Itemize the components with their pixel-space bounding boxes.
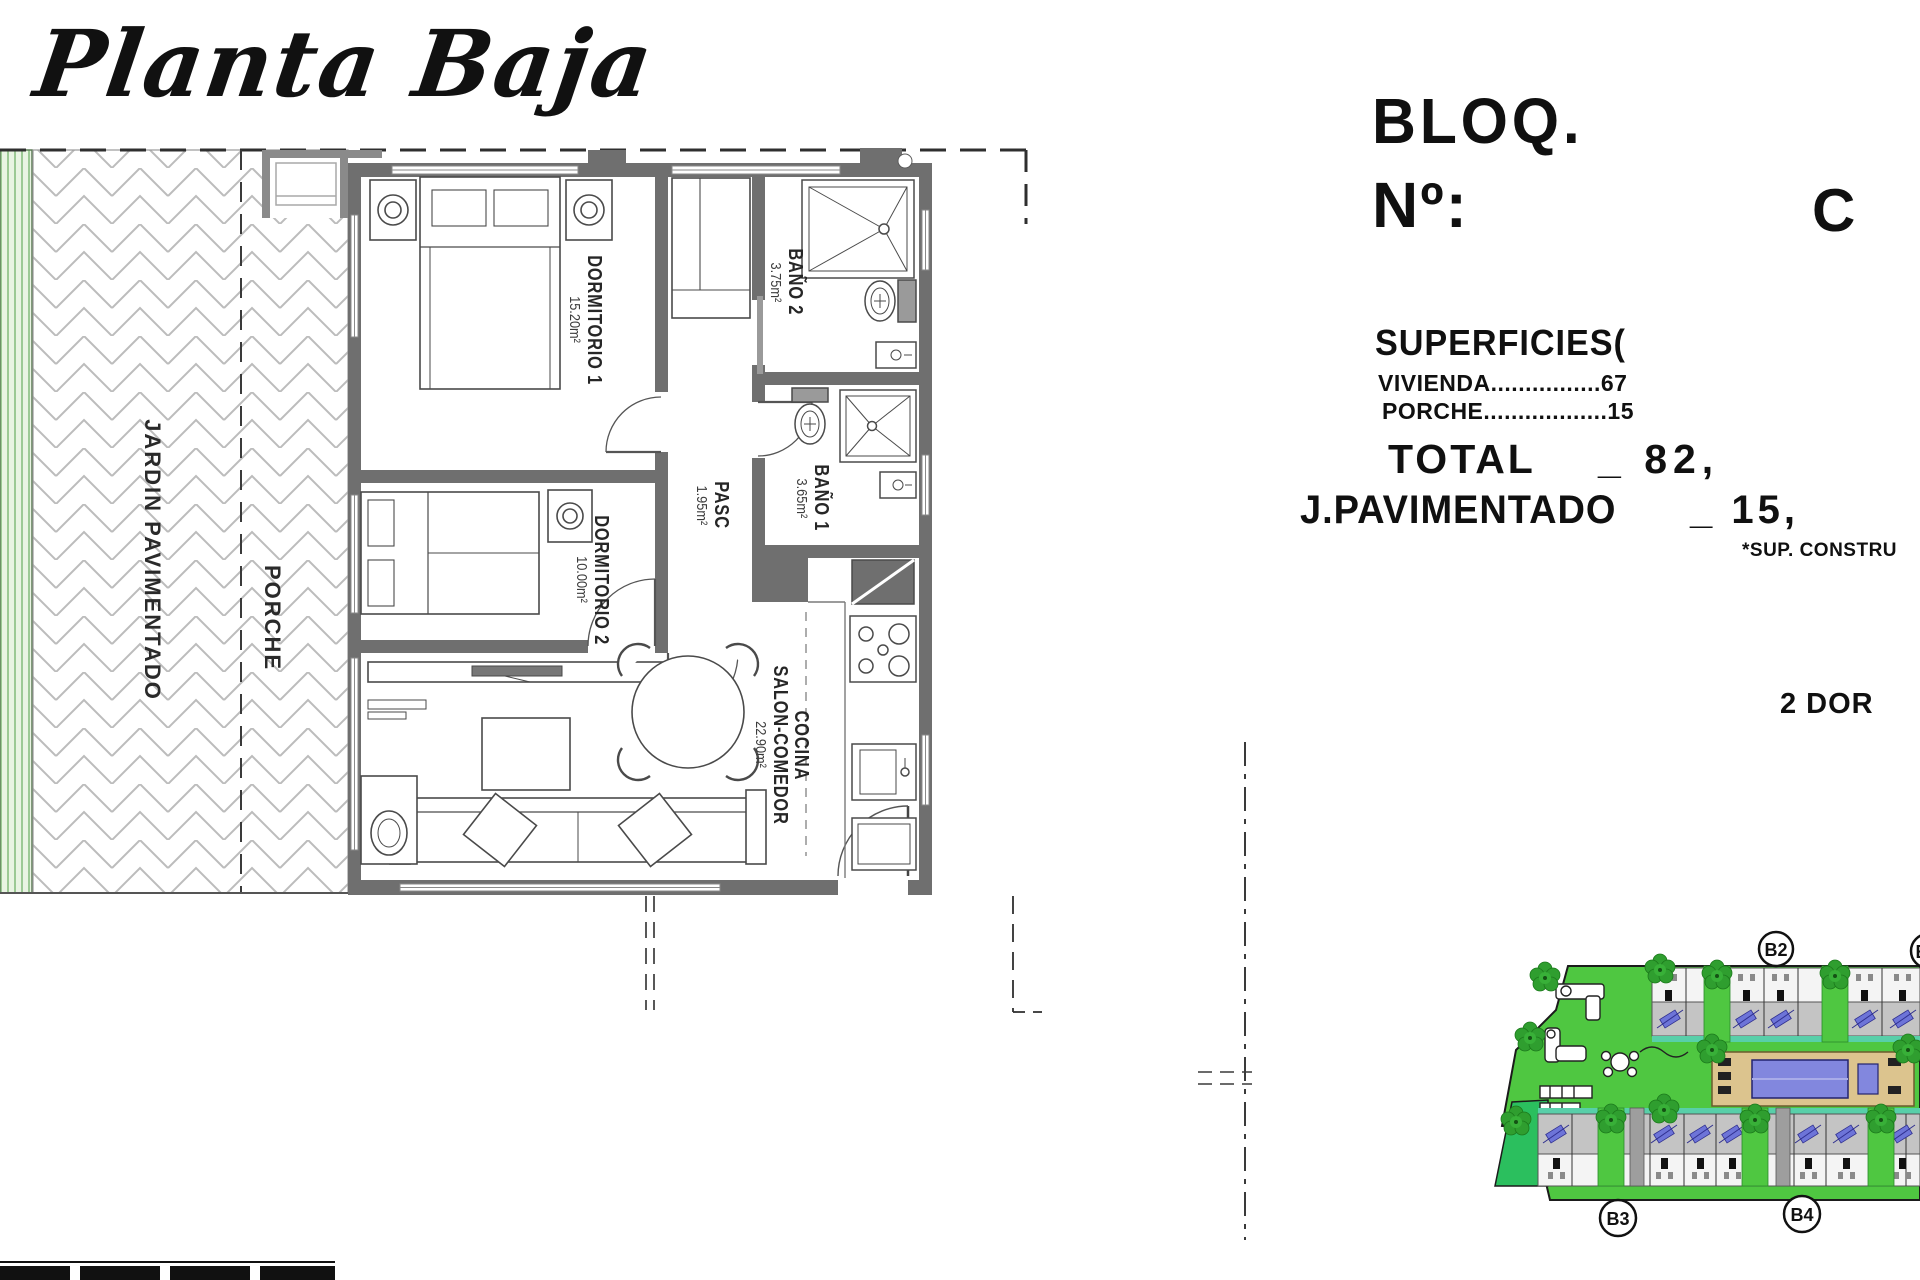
porch-niche	[262, 150, 382, 218]
number-value: C	[1812, 176, 1855, 245]
room-name: BAÑO 2	[784, 249, 805, 316]
jpavimentado-label: J.PAVIMENTADO	[1300, 488, 1616, 533]
room-name: PASC	[710, 481, 731, 529]
bedroom2-furniture	[361, 490, 592, 614]
toilet	[865, 280, 916, 322]
unit-type-label: 2 DOR	[1780, 688, 1874, 721]
page-title: Planta Baja	[28, 10, 660, 118]
total-value: _ 82,	[1598, 436, 1719, 483]
room-area: 3.75m²	[767, 262, 784, 302]
porche-line: PORCHE..................15	[1382, 398, 1634, 425]
room-name-line1: COCINA	[791, 710, 812, 780]
room-area: 1.95m²	[693, 485, 710, 525]
room-area: 10.00m²	[573, 557, 590, 604]
jardin-pavimentado-label: JARDIN PAVIMENTADO	[139, 410, 165, 710]
dishwasher	[852, 818, 916, 870]
room-name: BAÑO 1	[810, 465, 831, 532]
stove	[850, 616, 916, 682]
block-heading: BLOQ.	[1372, 84, 1584, 158]
room-area: 3.65m²	[793, 478, 810, 518]
section-dash-line	[1198, 742, 1252, 1240]
kitchen-sink	[852, 744, 916, 800]
toilet	[792, 388, 828, 444]
fridge	[852, 560, 914, 604]
block-label-b4: B4	[1790, 1205, 1813, 1225]
laundry-unit	[361, 776, 417, 864]
bathroom2-fixtures	[802, 180, 916, 368]
paved-garden-hatch	[33, 150, 348, 893]
jpavimentado-value: _ 15,	[1690, 488, 1799, 533]
living-room-furniture	[361, 644, 766, 866]
room-label-dormitorio1: DORMITORIO 1 15.20m²	[563, 205, 607, 435]
site-pool	[1712, 1052, 1914, 1106]
room-name: DORMITORIO 1	[583, 255, 604, 385]
site-plan: B2 B B3 B4	[1495, 932, 1920, 1236]
room-name: DORMITORIO 2	[590, 515, 611, 645]
shelf	[368, 700, 426, 709]
block-label-b-partial: B	[1916, 942, 1920, 962]
scale-bar	[0, 1262, 335, 1280]
block-label-b3: B3	[1606, 1209, 1629, 1229]
sink	[876, 342, 916, 368]
room-label-salon: COCINA SALON-COMEDOR 22.90m²	[751, 625, 813, 865]
kitchen-fixtures	[806, 560, 916, 878]
block-label-b2: B2	[1764, 940, 1787, 960]
superficies-heading: SUPERFICIES(	[1375, 322, 1626, 364]
site-units-top	[1652, 966, 1920, 1042]
sofa	[390, 790, 766, 866]
shelf	[368, 712, 406, 719]
room-label-dormitorio2: DORMITORIO 2 10.00m²	[570, 465, 614, 695]
footnote: *SUP. CONSTRU	[1742, 540, 1897, 562]
room-label-pasc: PASC 1.95m²	[692, 450, 732, 560]
room-name-line2: SALON-COMEDOR	[770, 665, 791, 824]
floor-plan-page: B2 B B3 B4 Planta Baja JARDIN PAVIMENTAD…	[0, 0, 1920, 1280]
garden-strip	[0, 150, 32, 893]
site-units-bottom	[1538, 1108, 1920, 1186]
porche-label: PORCHE	[259, 558, 285, 678]
coffee-table	[482, 718, 570, 790]
room-area: 15.20m²	[566, 297, 583, 344]
room-area: 22.90m²	[753, 722, 770, 769]
wardrobe	[672, 178, 750, 318]
sink	[880, 472, 916, 498]
plan-drawing: B2 B B3 B4	[0, 0, 1920, 1280]
number-heading: Nº:	[1372, 168, 1469, 242]
room-label-bano2: BAÑO 2 3.75m²	[766, 222, 806, 342]
dining-table	[632, 656, 744, 768]
room-label-bano1: BAÑO 1 3.65m²	[792, 438, 832, 558]
total-label: TOTAL	[1388, 436, 1536, 483]
bedroom1-furniture	[370, 177, 750, 389]
vivienda-line: VIVIENDA................67	[1378, 370, 1627, 397]
